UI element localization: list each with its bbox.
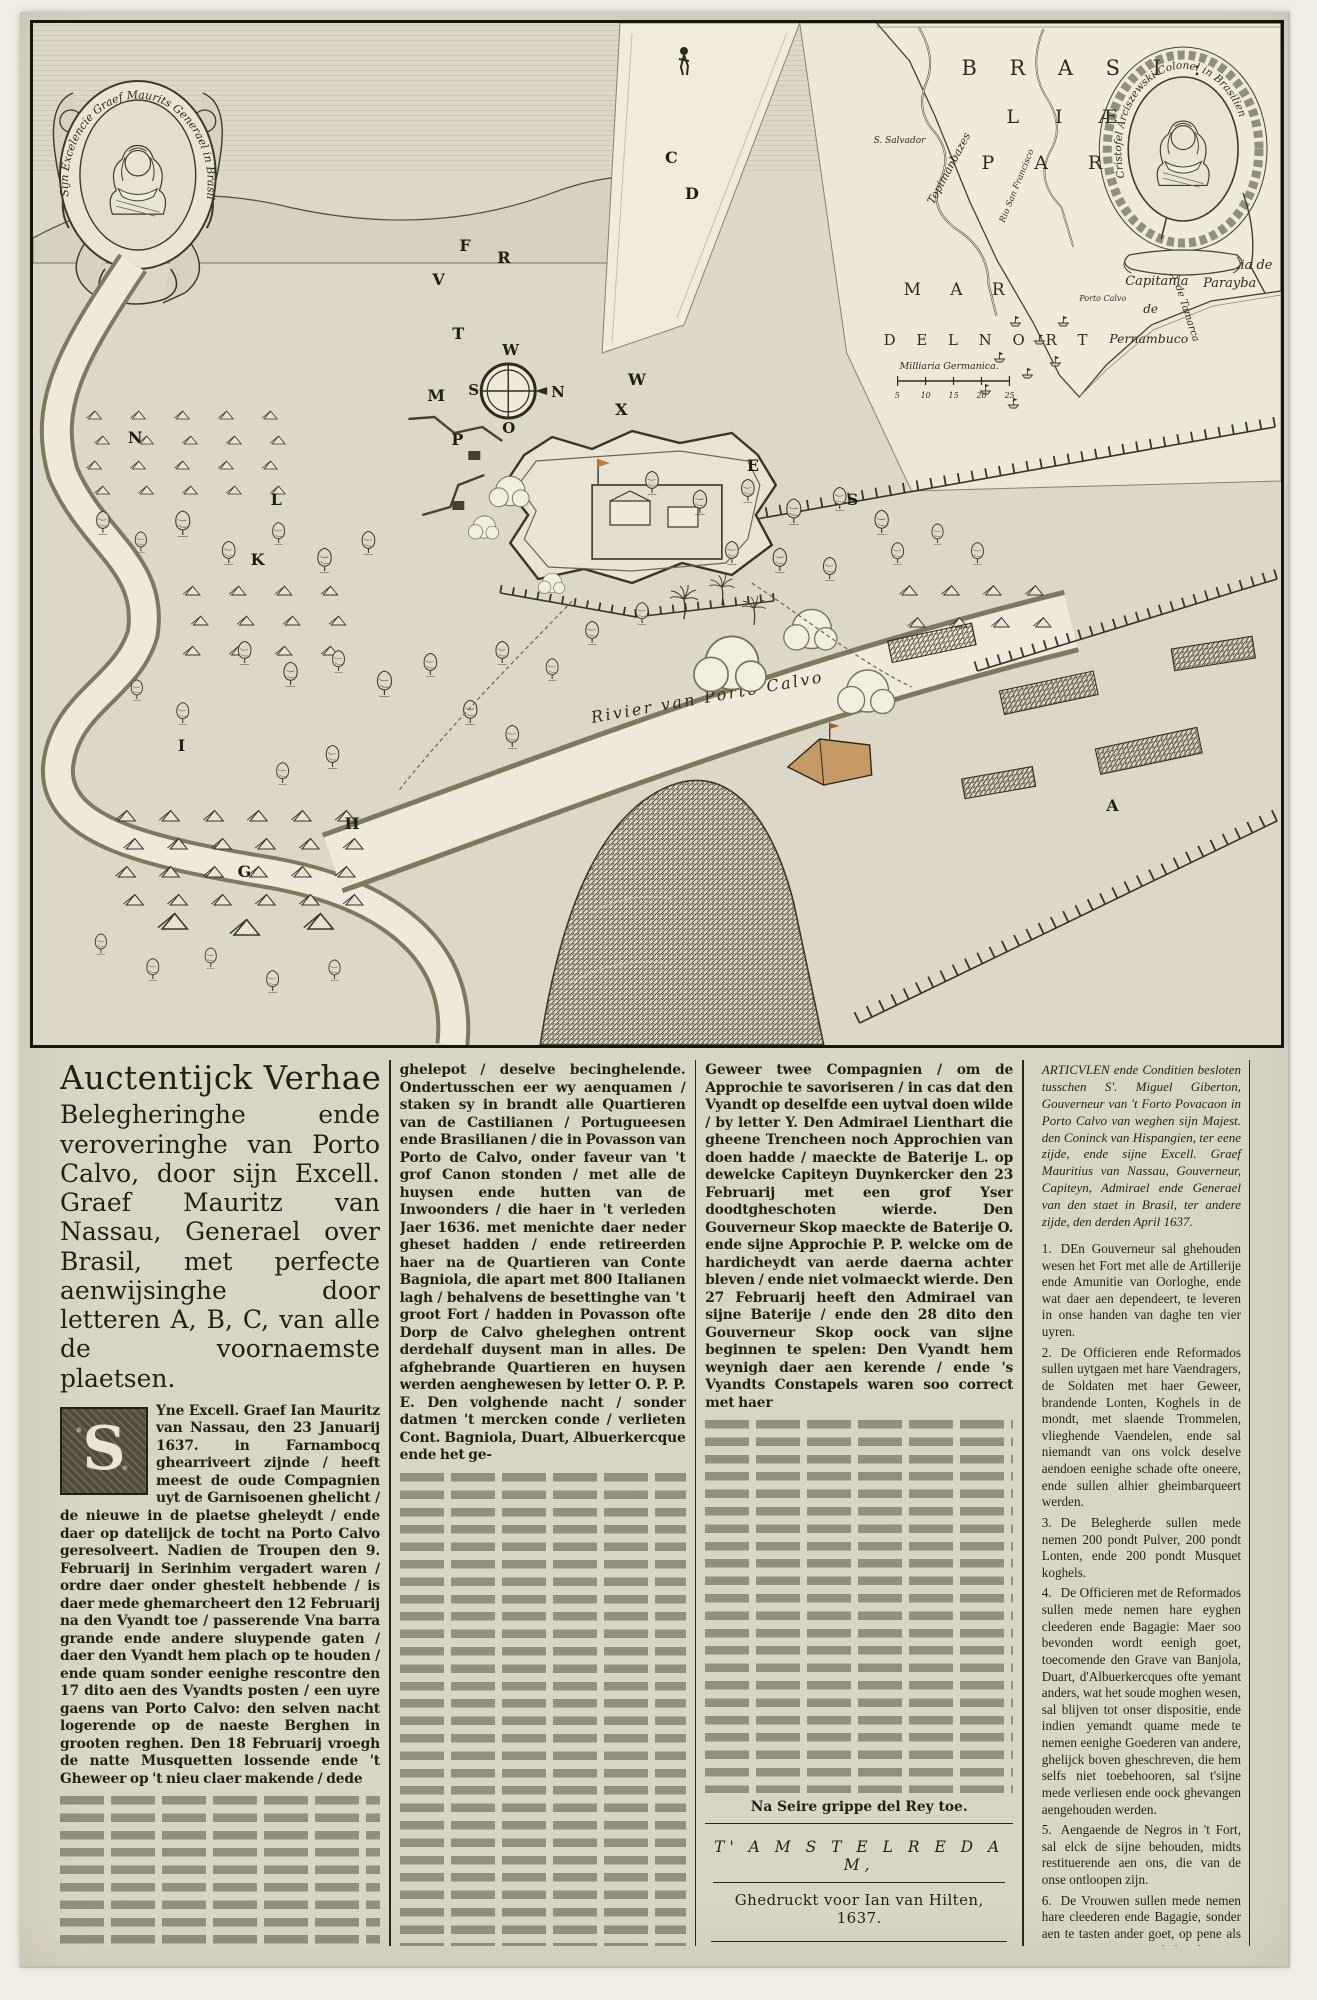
headline: Auctentijck Verhael van de [60,1060,380,1096]
scale-tick: 10 [921,391,931,400]
column-3: Geweer twee Compagnien / om de Approchie… [705,1060,1013,1946]
column-2: ghelepot / deselve becinghelende. Ondert… [400,1060,686,1946]
articles-list: 1.DEn Gouverneur sal ghehouden wesen het… [1042,1241,1241,1946]
compass-o: O [502,419,515,437]
siege-panorama-illustration: B R A S I : L I Æ P A R S . M A R D E L … [33,23,1281,1045]
body-text-col1: SYne Excell. Graef Ian Mauritz van Nassa… [60,1403,380,1788]
scale-tick: 15 [949,391,959,400]
drop-cap: S [60,1407,148,1495]
reference-letter: T [452,324,464,343]
imprint-rule [713,1882,1005,1883]
articles-header: ARTICVLEN ende Conditien besloten tussch… [1042,1062,1241,1231]
column-rule [695,1060,697,1946]
article-item: 4.De Officieren met de Reformados sullen… [1042,1585,1241,1818]
print-sheet: B R A S I : L I Æ P A R S . M A R D E L … [20,12,1288,1966]
map-label-salvador: S. Salvador [874,136,926,146]
blank-scroll-banner [1125,250,1242,275]
articles-column: ARTICVLEN ende Conditien besloten tussch… [1033,1060,1250,1946]
column-1: Auctentijck Verhael van de Belegheringhe… [60,1060,380,1946]
battery [452,501,464,510]
reference-letter: C [665,148,678,167]
print-scan: B R A S I : L I Æ P A R S . M A R D E L … [0,0,1317,2000]
article-item: 5.Aengaende de Negros in 't Fort, sal el… [1042,1822,1241,1889]
column3-last-line: Na Seire grippe del Rey toe. [705,1799,1013,1815]
engraving-panel: B R A S I : L I Æ P A R S . M A R D E L … [30,20,1284,1048]
reference-letter: L [271,490,282,509]
reference-letter: G [238,862,252,881]
dense-text-continuation [60,1796,380,1946]
body-text-col2: ghelepot / deselve becinghelende. Ondert… [400,1062,686,1465]
reference-letter: M [427,386,445,405]
reference-letter: H [345,814,360,833]
map-label-pernambuco: Pernambuco [1108,331,1188,346]
title-block: Auctentijck Verhael van de Belegheringhe… [60,1060,380,1393]
column-rule [1022,1060,1024,1946]
compass-n: N [551,383,565,401]
reference-letter: E [747,456,759,475]
map-label-parayba2: Parayba [1202,276,1256,291]
article-item: 6.De Vrouwen sullen mede nemen hare clee… [1042,1893,1241,1946]
sea-label-del-nort: D E L N O R T [884,331,1096,349]
reference-letter: D [685,184,699,203]
reference-letter: K [251,550,266,569]
article-item: 2.De Officieren ende Reformados sullen u… [1042,1345,1241,1511]
scale-tick: 5 [895,391,900,400]
dense-text-continuation [705,1420,1013,1793]
reference-letter: I [178,736,185,755]
dense-text-continuation [400,1473,686,1946]
reference-letter: W [627,370,647,389]
scale-tick: 25 [1003,391,1014,400]
reference-letter: R [497,248,511,267]
sea-label-mar: M A R [904,280,1017,300]
reference-letter: P [451,430,463,449]
scale-title: Milliaria Germanica. [899,361,999,372]
reference-letter: F [459,236,471,255]
column-rule [389,1060,391,1946]
map-label-de: de [1143,302,1158,316]
compass-s: S [468,381,479,399]
imprint-publisher: Ghedruckt voor Ian van Hilten, 1637. [711,1891,1007,1927]
subtitle: Belegheringhe ende veroveringhe van Port… [60,1100,380,1393]
compass-w: W [501,341,519,359]
reference-letter: N [128,428,143,447]
imprint-colophon: T' A M S T E L R E D A M, Ghedruckt voor… [705,1823,1013,1946]
scale-tick: 20 [975,391,986,400]
reference-letter: V [431,270,445,289]
body-text-col3: Geweer twee Compagnien / om de Approchie… [705,1062,1013,1412]
article-item: 3.De Belegherde sullen mede nemen 200 po… [1042,1515,1241,1582]
map-label-porto-calvo: Porto Calvo [1078,294,1126,303]
imprint-city: T' A M S T E L R E D A M, [711,1838,1007,1874]
battery [468,451,480,460]
reference-letter: S [847,490,859,509]
reference-letter: X [615,400,628,419]
imprint-rule [711,1941,1007,1942]
article-item: 1.DEn Gouverneur sal ghehouden wesen het… [1042,1241,1241,1341]
reference-letter: A [1105,796,1119,815]
letterpress-section: Auctentijck Verhael van de Belegheringhe… [60,1060,1250,1946]
